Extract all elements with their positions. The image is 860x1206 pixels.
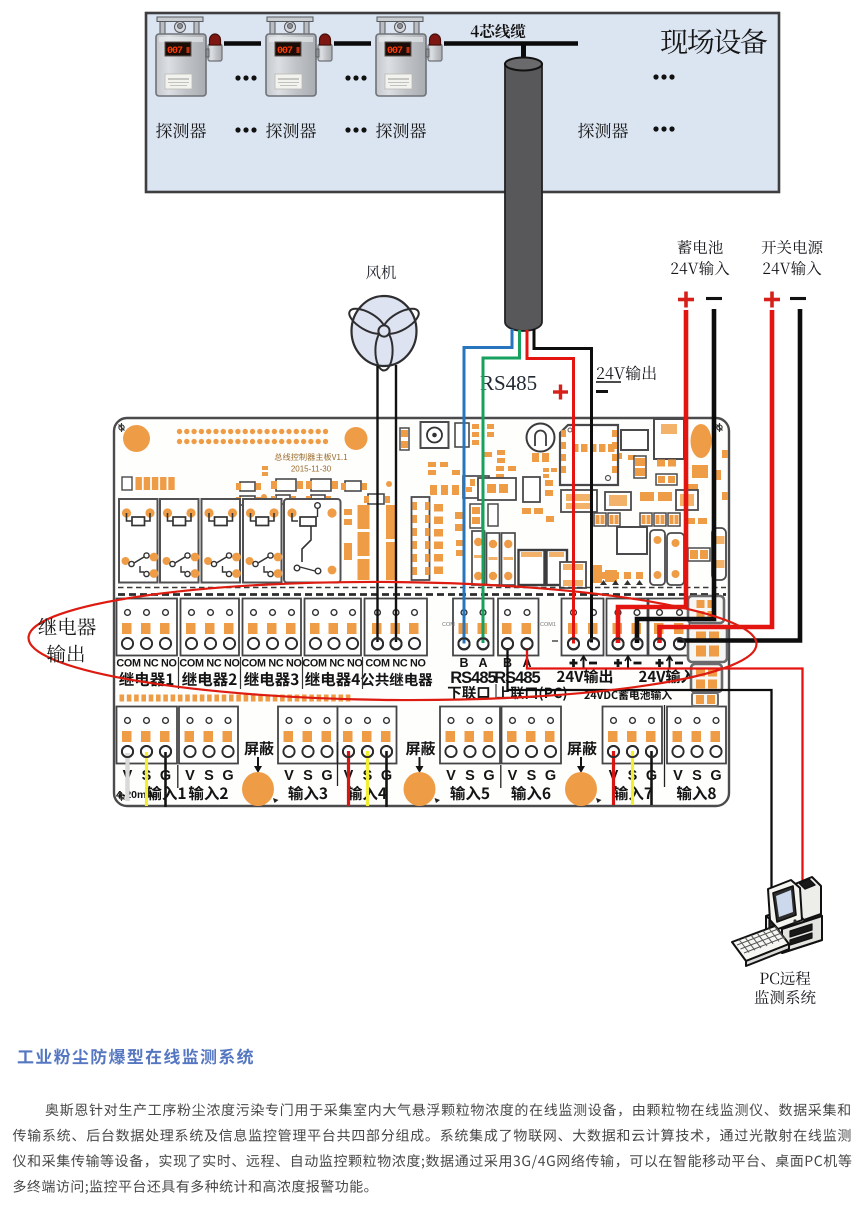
svg-text:007: 007	[387, 46, 403, 57]
svg-text:G: G	[483, 768, 494, 784]
svg-text:RS485: RS485	[450, 669, 496, 687]
svg-text:S: S	[465, 768, 475, 784]
svg-text:COM NC NO: COM NC NO	[241, 658, 301, 670]
svg-text:V: V	[185, 768, 195, 784]
svg-text:G: G	[545, 768, 556, 784]
svg-text:S: S	[303, 768, 313, 784]
svg-text:RS485: RS485	[480, 371, 537, 395]
svg-text:V: V	[508, 768, 518, 784]
svg-text:G: G	[321, 768, 332, 784]
svg-text:COM NC NO: COM NC NO	[179, 658, 239, 670]
svg-text:S: S	[692, 768, 702, 784]
svg-text:V: V	[673, 768, 683, 784]
svg-text:COM NC NO: COM NC NO	[365, 658, 425, 670]
svg-text:COM1: COM1	[540, 622, 556, 628]
svg-text:G: G	[222, 768, 233, 784]
svg-text:A: A	[478, 656, 487, 670]
svg-text:V: V	[284, 768, 294, 784]
svg-text:V: V	[446, 768, 456, 784]
svg-text:S: S	[204, 768, 214, 784]
svg-text:007: 007	[167, 46, 183, 57]
svg-text:COM NC NO: COM NC NO	[116, 658, 176, 670]
svg-text:COM: COM	[442, 622, 455, 628]
svg-text:007: 007	[277, 46, 293, 57]
svg-text:B: B	[459, 656, 468, 670]
svg-text:RS485: RS485	[494, 669, 540, 687]
svg-text:G: G	[710, 768, 721, 784]
svg-text:S: S	[527, 768, 537, 784]
svg-text:2015-11-30: 2015-11-30	[291, 465, 332, 474]
svg-text:COM NC NO: COM NC NO	[302, 658, 362, 670]
